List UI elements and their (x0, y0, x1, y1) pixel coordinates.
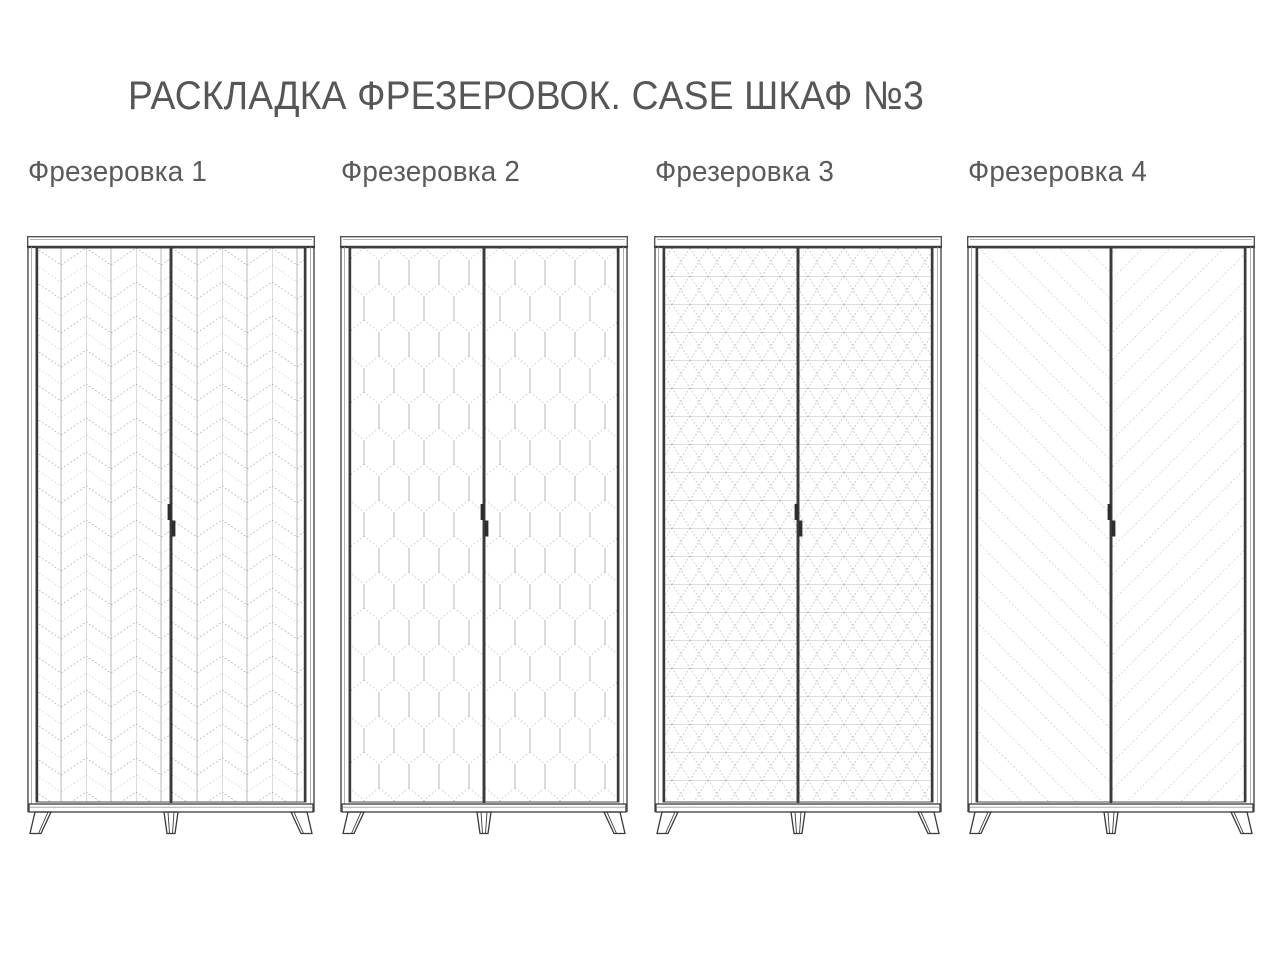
leg-right (604, 812, 625, 834)
leg-left (970, 812, 991, 834)
leg-center (791, 812, 805, 834)
handle-left (795, 504, 799, 520)
cabinet-3: Фрезеровка 3 (654, 156, 942, 836)
cabinet-4-label: Фрезеровка 4 (968, 156, 1244, 188)
drawing-sheet: РАСКЛАДКА ФРЕЗЕРОВОК. CASE ШКАФ №3 Фрезе… (0, 0, 1281, 961)
top-panel (968, 237, 1255, 247)
door-left (349, 248, 483, 802)
cabinet-3-label: Фрезеровка 3 (655, 156, 931, 188)
door-right (799, 248, 933, 802)
legs (30, 812, 312, 834)
handle-right (172, 521, 176, 537)
door-right (1112, 248, 1246, 802)
leg-left (343, 812, 364, 834)
leg-center (1104, 812, 1118, 834)
door-right (485, 248, 619, 802)
cabinet-1-label: Фрезеровка 1 (28, 156, 304, 188)
page-title: РАСКЛАДКА ФРЕЗЕРОВОК. CASE ШКАФ №3 (128, 74, 924, 119)
cabinet-2: Фрезеровка 2 (340, 156, 628, 836)
base-rail (969, 804, 1253, 812)
leg-right (918, 812, 939, 834)
door-right (172, 248, 306, 802)
cabinet-1: Фрезеровка 1 (27, 156, 315, 836)
handle-right (485, 521, 489, 537)
leg-left (30, 812, 51, 834)
door-left (36, 248, 170, 802)
top-panel (341, 237, 628, 247)
legs (657, 812, 939, 834)
cabinet-2-drawing (340, 236, 628, 836)
leg-right (1231, 812, 1252, 834)
leg-right (291, 812, 312, 834)
cabinet-2-label: Фрезеровка 2 (341, 156, 617, 188)
cabinet-1-drawing (27, 236, 315, 836)
handle-right (799, 521, 803, 537)
cabinet-3-drawing (654, 236, 942, 836)
legs (343, 812, 625, 834)
top-panel (655, 237, 942, 247)
base-rail (342, 804, 626, 812)
leg-left (657, 812, 678, 834)
handle-right (1112, 521, 1116, 537)
cabinet-4: Фрезеровка 4 (967, 156, 1255, 836)
handle-left (481, 504, 485, 520)
leg-center (164, 812, 178, 834)
leg-center (477, 812, 491, 834)
door-left (976, 248, 1110, 802)
cabinet-4-drawing (967, 236, 1255, 836)
door-left (663, 248, 797, 802)
base-rail (656, 804, 940, 812)
handle-left (1108, 504, 1112, 520)
top-panel (28, 237, 315, 247)
legs (970, 812, 1252, 834)
base-rail (29, 804, 313, 812)
handle-left (168, 504, 172, 520)
